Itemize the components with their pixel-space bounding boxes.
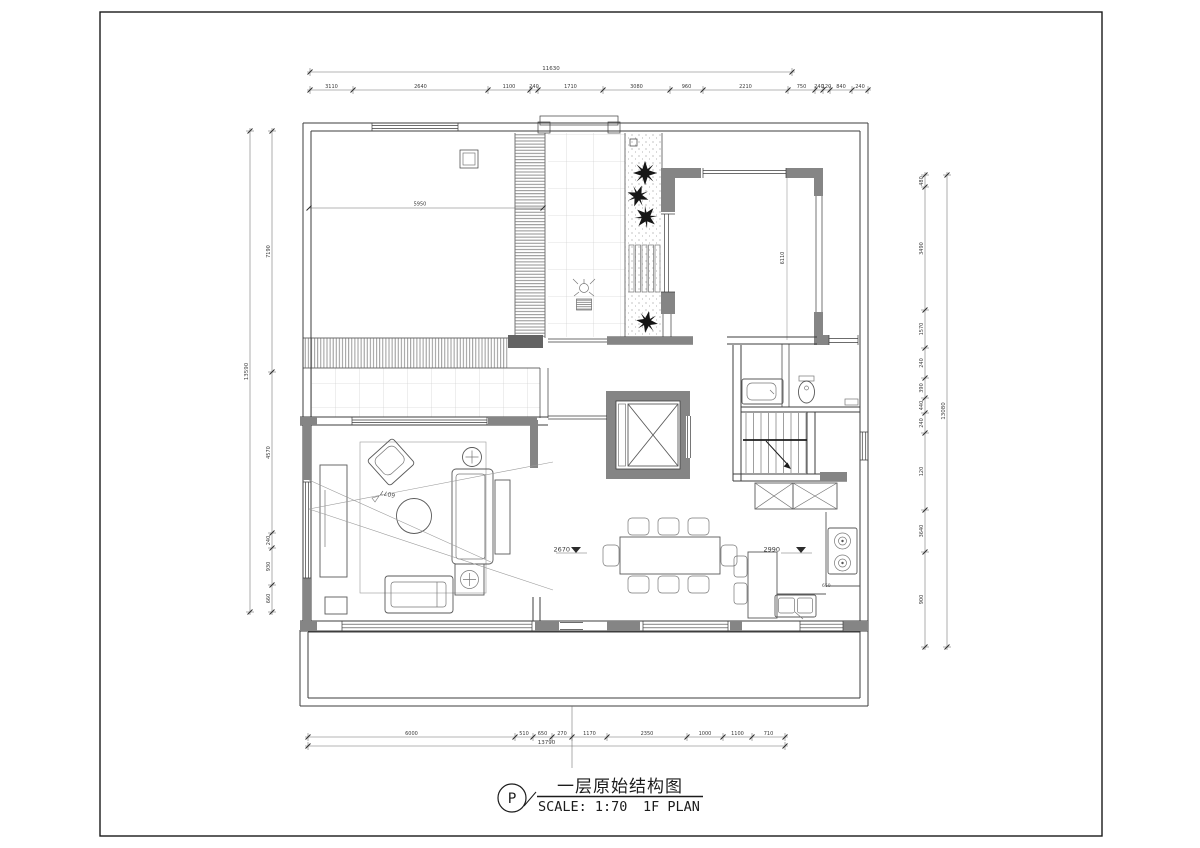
dim-label: 840 [836,84,846,90]
room-right-window [816,196,822,312]
dim-chain-bottom_total: 13790 [305,740,788,750]
dim-label: 240 [529,84,539,90]
staircase [733,345,860,481]
dim-label: 13080 [941,402,947,420]
louver-strip-hatch [304,339,508,368]
dim-chain-right: 480349015702403904402401203640900 [919,172,929,650]
dim-chain-left_total: 13590 [244,128,254,615]
counter-depth-label: 650 [822,583,831,589]
section-marker-letter: P [508,791,516,807]
drawing-sheet: 5950 [0,0,1200,848]
floor-finishes [304,133,662,417]
dining-bottom-window [643,621,728,631]
dim-label: 240 [919,418,925,428]
bathroom [742,344,858,407]
dim-label: 3110 [325,84,338,90]
island-counter [748,552,777,618]
toilet-icon [799,381,815,403]
dim-label: 1170 [583,731,596,737]
kitchen-level-value: 2990 [763,546,780,554]
sofa [452,469,493,564]
dim-label: 2350 [641,731,654,737]
dim-label: 11630 [542,66,560,72]
dim-label: 3640 [919,525,925,538]
bottom-threshold [560,623,583,630]
dim-label: 710 [764,731,774,737]
dim-chain-top_total: 11630 [307,66,795,76]
drawing-title: 一层原始结构图 [557,777,683,797]
dim-label: 240 [855,84,865,90]
sight-lines [309,462,553,590]
toilet-tank [799,376,814,381]
dim-label: 270 [557,731,567,737]
dim-chain-left: 71904570240930660 [266,128,276,615]
right-window [860,432,868,460]
elevator [606,391,692,479]
living-bottom-window [342,621,532,631]
floor-plan: 5950 [300,116,868,768]
dim-chain-right_total: 13080 [941,172,951,650]
plant-icon [633,161,657,185]
stool [734,583,747,604]
dim-label: 440 [919,401,925,411]
top-right-room: 6110 [661,168,823,345]
dim-label: 960 [682,84,692,90]
dim-chain-top: 3110264011002401710308096022107502401208… [307,84,871,94]
dim-label: 930 [266,562,272,572]
dim-label: 1100 [731,731,744,737]
dining-table [620,537,720,574]
floor-box [325,597,347,614]
terrace-tiles [311,368,540,417]
dim-label: 1000 [699,731,712,737]
coffee-table [397,499,432,534]
dim-label: 1710 [564,84,577,90]
top-left-room: 5950 [307,150,546,211]
dim-label: 120 [919,467,925,477]
bath-shelf [845,399,858,405]
dim-label: 7190 [266,245,272,258]
entry-canopy [538,116,620,133]
dim-label: 6000 [405,731,418,737]
sloped-area-hatch [516,133,545,338]
living-room-furniture: 6077 [309,438,553,614]
living-top-window [352,417,487,425]
dim-label: 4570 [266,446,272,459]
side-table-top [463,448,482,467]
kitchen-level-marker: 2990 [763,546,812,554]
level-triangle-icon [796,547,806,553]
living-diag-dim: 6077 [379,488,396,498]
dining-level-marker: 2670 [553,546,587,554]
living-left-window [303,482,311,578]
dim-label: 650 [538,731,548,737]
dim-label: 3080 [630,84,643,90]
dining-level-value: 2670 [553,546,570,554]
interior-dim-6110: 6110 [780,252,786,265]
stool [734,556,747,577]
room-left-window [661,214,675,292]
title-block: P 一层原始结构图 SCALE: 1:70 1F PLAN [498,777,703,815]
dining-chairs [603,518,737,593]
plan-label: 1F PLAN [643,799,700,815]
top-window [372,123,458,131]
side-table-bottom [455,564,484,595]
dim-label: 480 [919,176,925,186]
sofa-console [495,480,510,554]
wall-chunk-dark [508,335,543,348]
dim-label: 2640 [414,84,427,90]
armchair [367,438,415,486]
room-top-window [703,168,786,178]
dim-label: 1570 [919,323,925,336]
dim-label: 13590 [244,362,250,380]
dim-label: 240 [266,536,272,546]
dim-label: 240 [919,358,925,368]
chaise-lounge [385,576,453,613]
interior-dim-5950: 5950 [414,202,427,208]
dim-label: 3490 [919,242,925,255]
dim-label: 120 [822,84,832,90]
garden-gravel [625,133,662,337]
kitchen: 650 2990 [734,483,860,619]
stair-arrow [766,441,789,466]
dim-label: 900 [919,595,925,605]
tv-cabinet [320,465,347,577]
dim-label: 750 [797,84,807,90]
dim-label: 13790 [538,740,556,746]
dim-label: 660 [266,594,272,604]
burner-icon [835,533,851,571]
statue-base [577,299,592,310]
scale-label: SCALE: 1:70 [538,799,627,815]
level-triangle-icon [571,547,581,553]
dim-label: 390 [919,383,925,393]
floor-plan-svg: 5950 [0,0,1200,848]
dim-label: 510 [519,731,529,737]
hall-threshold [548,416,607,419]
dim-label: 1100 [503,84,516,90]
kitchen-bottom-window [800,621,843,631]
stair-arrowhead [784,463,792,470]
dining-area: 2670 [553,518,737,593]
dim-label: 2210 [739,84,752,90]
